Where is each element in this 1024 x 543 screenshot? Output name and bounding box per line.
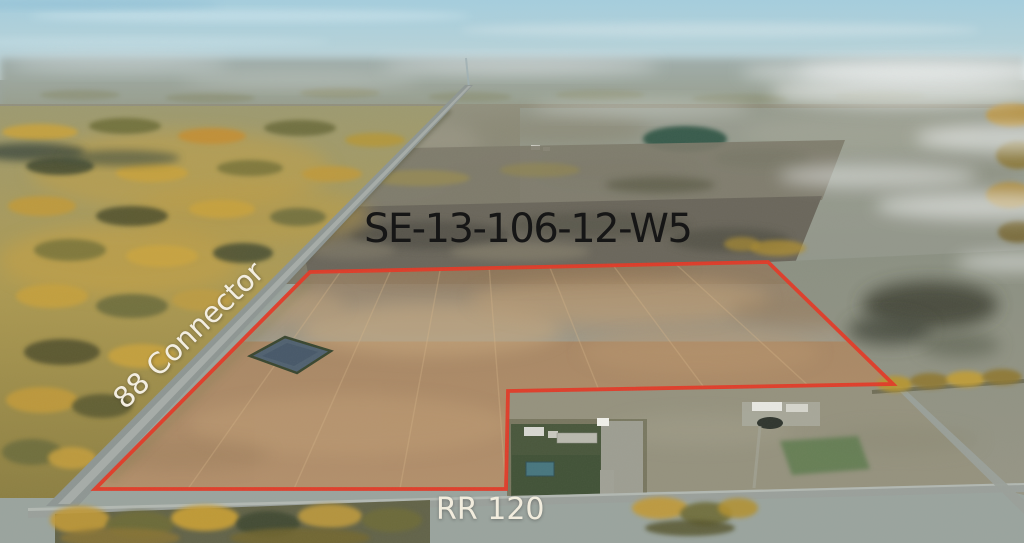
aerial-photo <box>0 0 1024 543</box>
aerial-photo-canvas: SE-13-106-12-W5 88 Connector RR 120 <box>0 0 1024 543</box>
photo-grain <box>0 0 1024 543</box>
